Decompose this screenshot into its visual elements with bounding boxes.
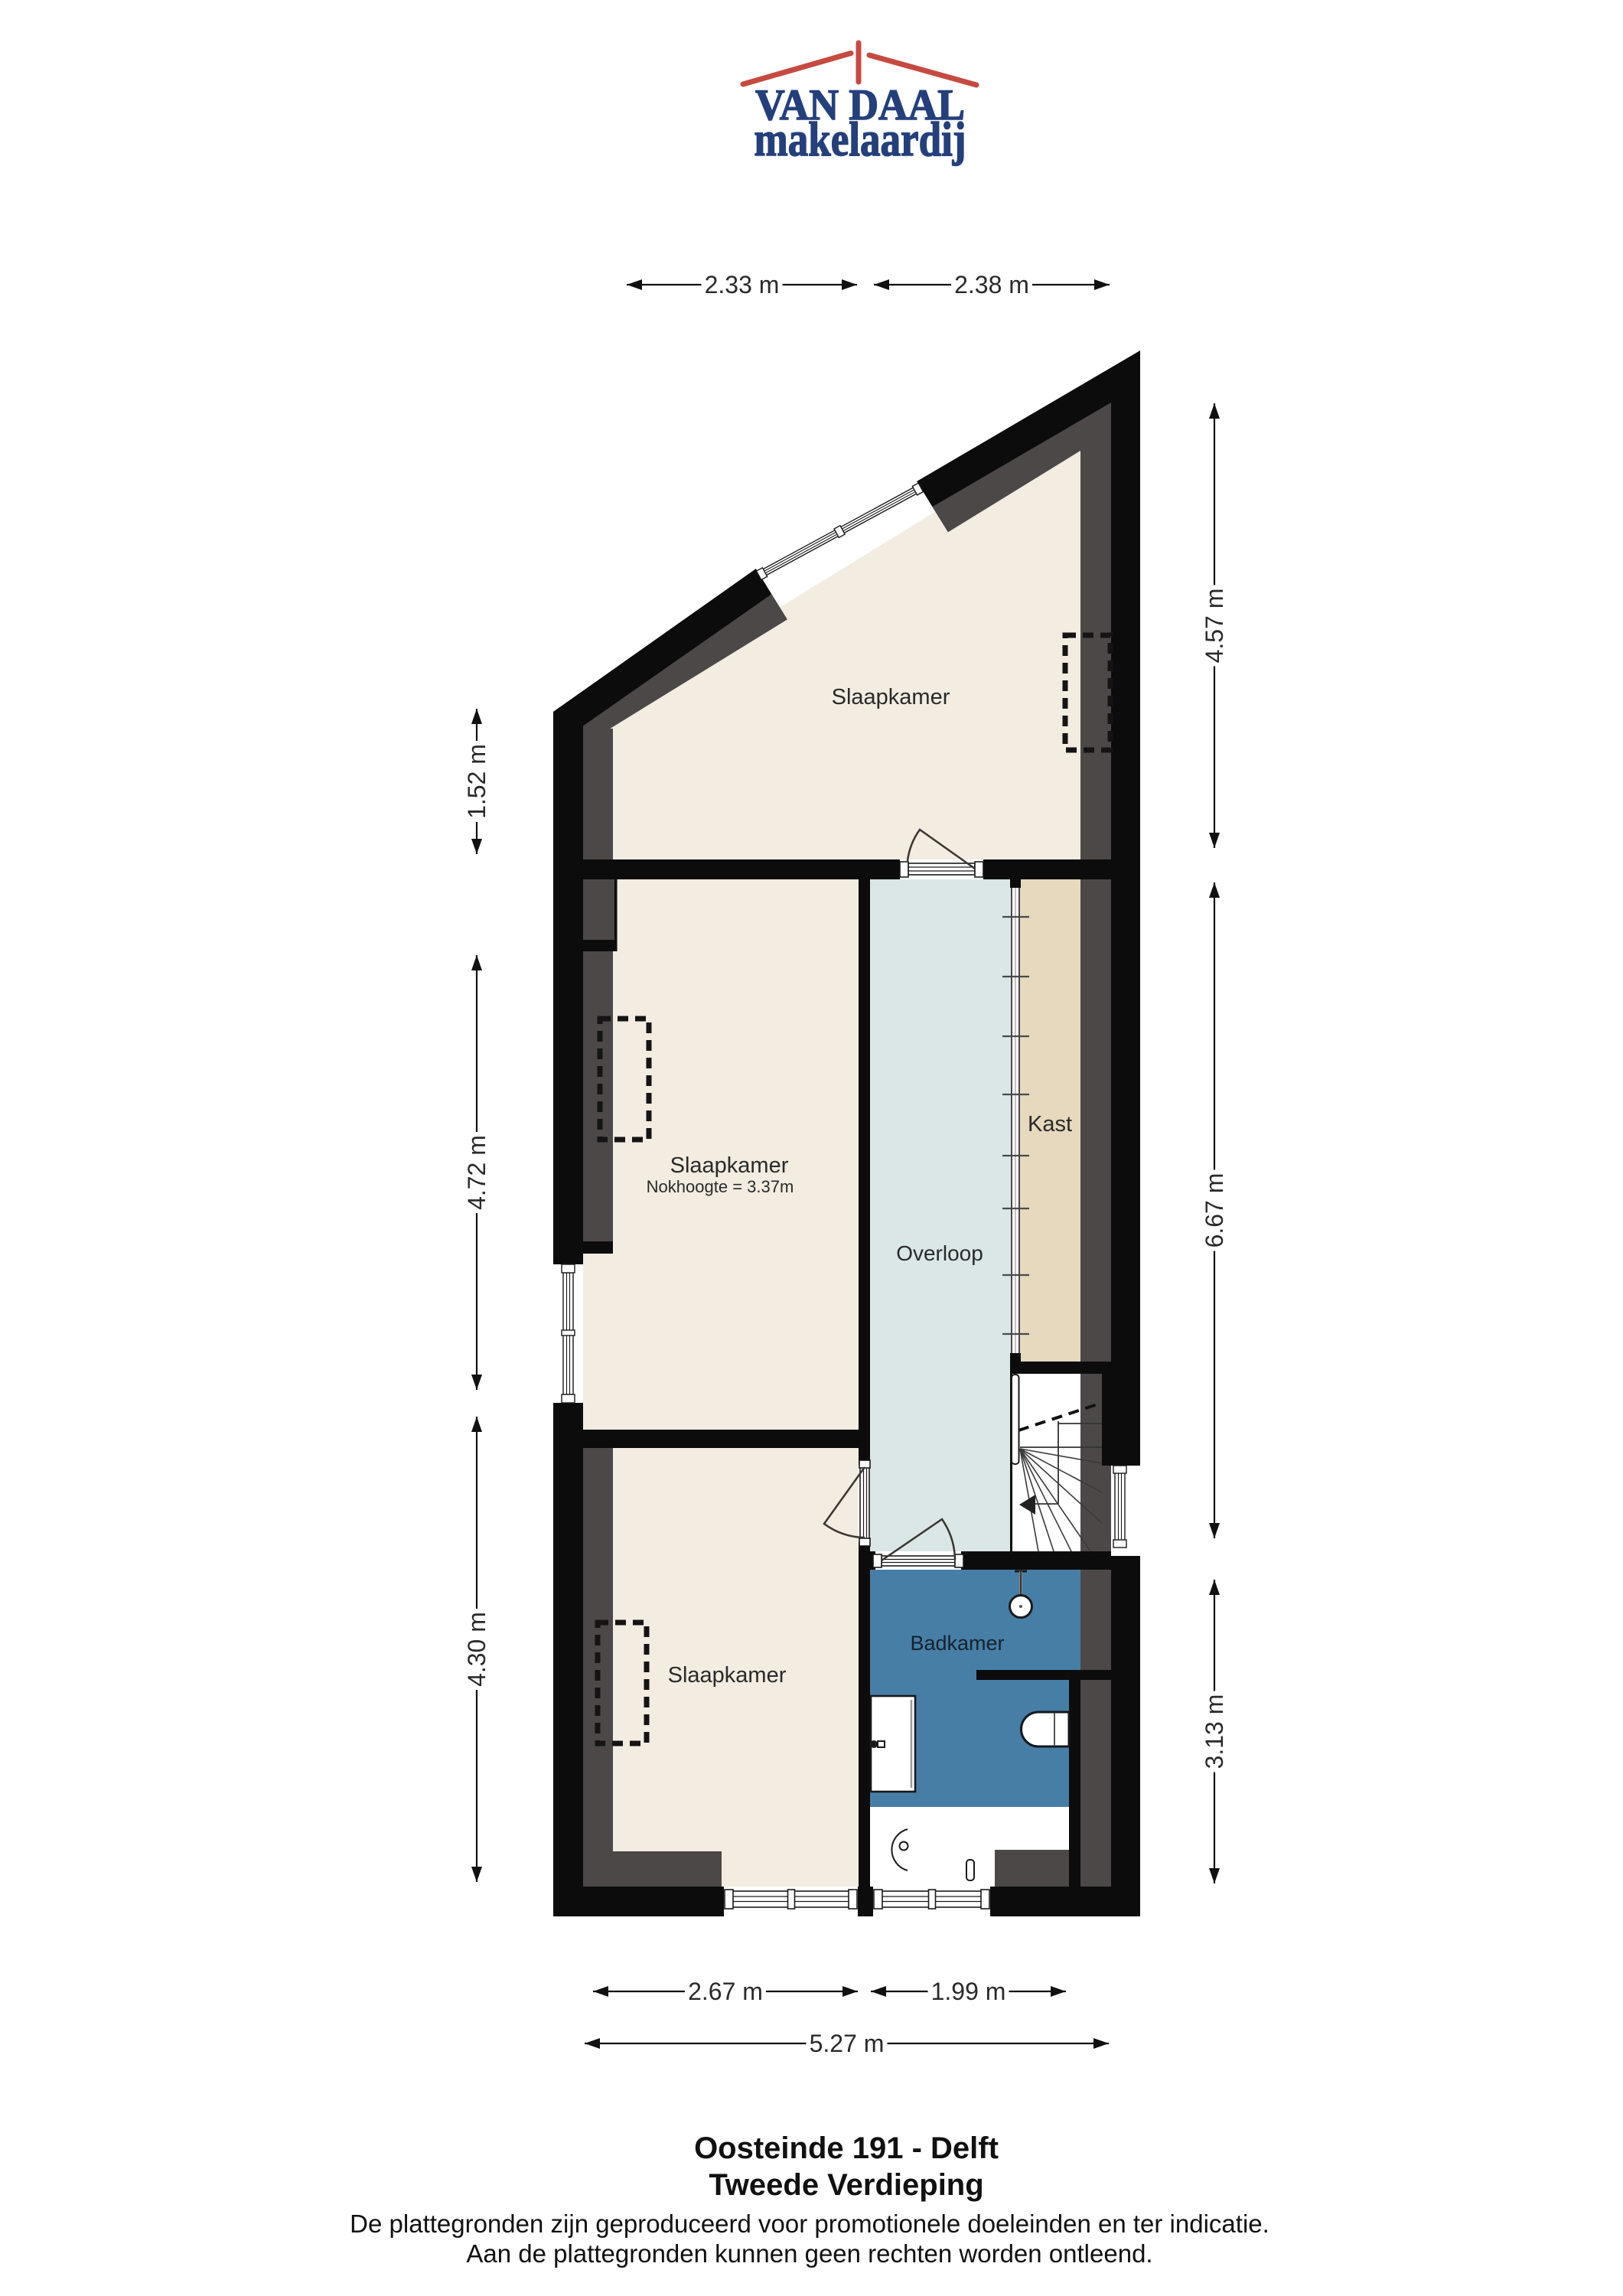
- svg-text:4.57 m: 4.57 m: [1201, 589, 1228, 664]
- svg-text:Overloop: Overloop: [896, 1241, 983, 1265]
- svg-text:Slaapkamer: Slaapkamer: [668, 1663, 787, 1688]
- svg-text:1.52 m: 1.52 m: [463, 744, 490, 819]
- svg-text:1.99 m: 1.99 m: [931, 1978, 1006, 2005]
- svg-text:2.33 m: 2.33 m: [705, 271, 780, 298]
- svg-text:2.38 m: 2.38 m: [954, 271, 1029, 298]
- svg-text:4.72 m: 4.72 m: [463, 1135, 490, 1210]
- svg-text:Nokhoogte = 3.37m: Nokhoogte = 3.37m: [647, 1177, 794, 1196]
- svg-text:4.30 m: 4.30 m: [463, 1612, 490, 1687]
- svg-text:3.13 m: 3.13 m: [1201, 1694, 1228, 1769]
- svg-text:6.67 m: 6.67 m: [1201, 1173, 1228, 1248]
- svg-text:Aan de plattegronden kunnen ge: Aan de plattegronden kunnen geen rechten…: [466, 2239, 1152, 2268]
- svg-text:Kast: Kast: [1028, 1112, 1072, 1137]
- svg-text:2.67 m: 2.67 m: [688, 1978, 763, 2005]
- svg-text:Badkamer: Badkamer: [910, 1632, 1004, 1655]
- svg-text:Oosteinde 191 - Delft: Oosteinde 191 - Delft: [694, 2131, 999, 2165]
- svg-text:5.27 m: 5.27 m: [810, 2030, 885, 2057]
- svg-text:makelaardij: makelaardij: [754, 112, 966, 166]
- svg-text:Slaapkamer: Slaapkamer: [670, 1153, 789, 1178]
- svg-text:Slaapkamer: Slaapkamer: [832, 685, 950, 709]
- svg-text:Tweede Verdieping: Tweede Verdieping: [709, 2168, 983, 2202]
- svg-text:De plattegronden zijn geproduc: De plattegronden zijn geproduceerd voor …: [350, 2210, 1269, 2238]
